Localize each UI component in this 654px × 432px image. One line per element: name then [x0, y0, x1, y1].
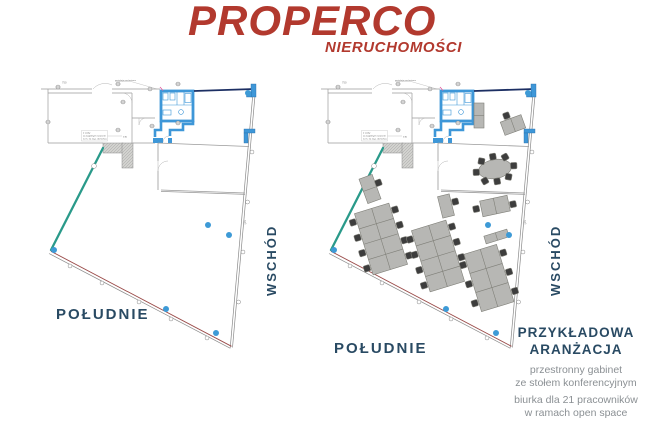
manager-desk — [472, 194, 518, 219]
floorplan-page: PROPERCO NIERUCHOMOŚCI — [0, 0, 654, 432]
desk-bank-2 — [405, 218, 472, 294]
cabinet — [474, 103, 484, 128]
arrangement-desc-4: w ramach open space — [498, 407, 654, 420]
brand-subtitle: NIERUCHOMOŚCI — [325, 39, 462, 56]
arrangement-note: PRZYKŁADOWA ARANŻACJA przestronny gabine… — [498, 324, 654, 420]
arrangement-heading-2: ARANŻACJA — [498, 341, 654, 358]
label-south-left: POŁUDNIE — [56, 306, 150, 323]
arrangement-desc-1: przestronny gabinet — [498, 364, 654, 377]
sideboard — [484, 229, 509, 244]
label-east-left: WSCHÓD — [264, 222, 282, 296]
conference-table — [470, 150, 520, 189]
desk-bank-3 — [457, 242, 521, 314]
brand-logo: PROPERCO — [188, 0, 468, 42]
label-south-right: POŁUDNIE — [334, 340, 428, 357]
arrangement-desc-2: ze stołem konferencyjnym — [498, 377, 654, 390]
side-desk — [438, 192, 462, 218]
label-east-right: WSCHÓD — [548, 222, 566, 296]
arrangement-desc-3: biurka dla 21 pracowników — [498, 394, 654, 407]
desk-single — [498, 108, 526, 135]
floor-plan-right — [321, 79, 536, 349]
teal-wall-desk — [359, 172, 387, 203]
floor-plans-svg: 343 — [35, 60, 550, 370]
arrangement-heading-1: PRZYKŁADOWA — [498, 324, 654, 341]
